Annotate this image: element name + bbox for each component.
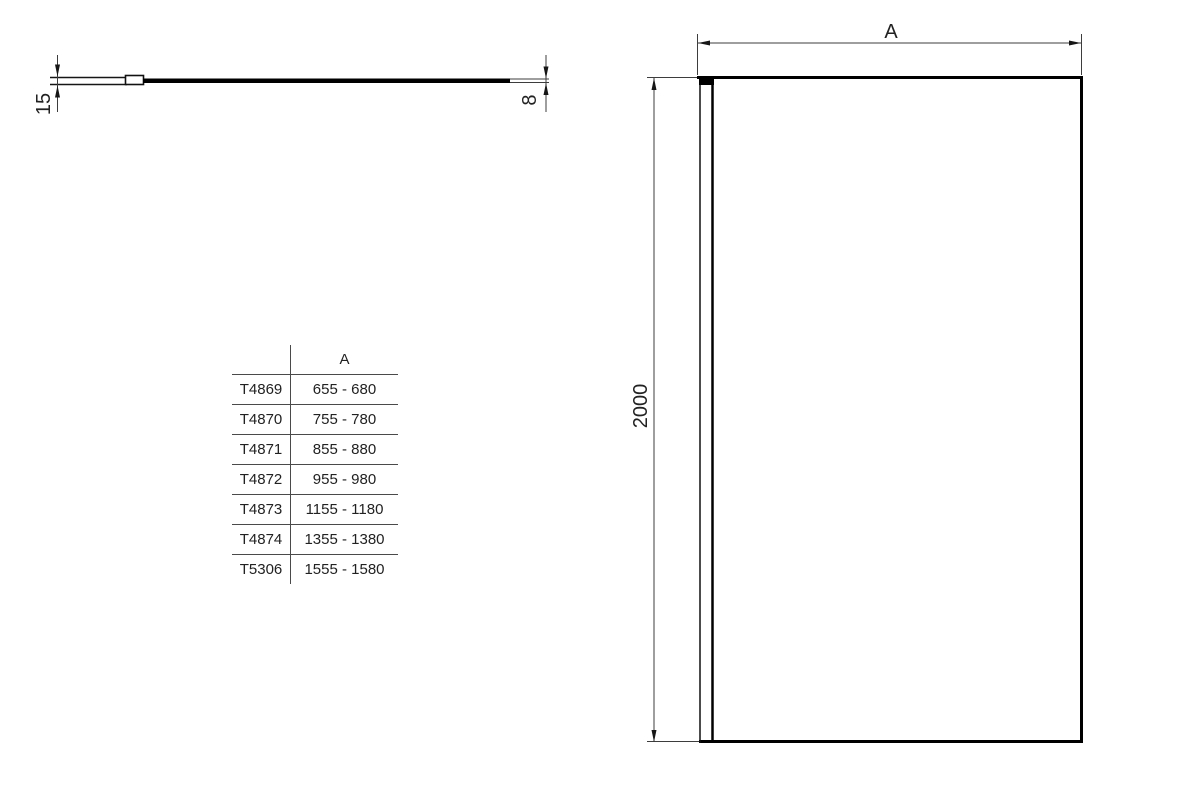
dim-a-label: A bbox=[884, 21, 898, 43]
table-row: T5306 1555 - 1580 bbox=[232, 555, 398, 585]
size-table: A T4869 655 - 680 T4870 755 - 780 T4871 … bbox=[232, 345, 398, 584]
front-panel-bottom-edge bbox=[699, 740, 1083, 743]
product-code: T4869 bbox=[232, 375, 291, 405]
width-range: 1155 - 1180 bbox=[291, 495, 399, 525]
product-code: T4871 bbox=[232, 435, 291, 465]
table-row: T4873 1155 - 1180 bbox=[232, 495, 398, 525]
width-range: 655 - 680 bbox=[291, 375, 399, 405]
product-code: T5306 bbox=[232, 555, 291, 585]
dim-15-arrow-up bbox=[55, 86, 60, 98]
technical-drawing-canvas: 15 8 A bbox=[0, 0, 1194, 806]
dim-a-arrow-left bbox=[698, 41, 710, 46]
product-code: T4872 bbox=[232, 465, 291, 495]
table-row: T4869 655 - 680 bbox=[232, 375, 398, 405]
product-code: T4873 bbox=[232, 495, 291, 525]
front-panel-top-edge bbox=[697, 76, 1083, 79]
width-range: 955 - 980 bbox=[291, 465, 399, 495]
table-row: T4870 755 - 780 bbox=[232, 405, 398, 435]
plan-glass-panel bbox=[143, 79, 510, 84]
dim-a-arrow-right bbox=[1069, 41, 1081, 46]
table-row: T4872 955 - 980 bbox=[232, 465, 398, 495]
product-code: T4874 bbox=[232, 525, 291, 555]
front-bracket bbox=[699, 76, 714, 85]
product-code: T4870 bbox=[232, 405, 291, 435]
dim-15-label: 15 bbox=[33, 93, 55, 115]
table-row: T4874 1355 - 1380 bbox=[232, 525, 398, 555]
size-table-code-header bbox=[232, 345, 291, 375]
width-range: 1355 - 1380 bbox=[291, 525, 399, 555]
plan-view: 15 8 bbox=[33, 55, 549, 115]
dim-2000-arrow-up bbox=[652, 78, 657, 90]
width-range: 1555 - 1580 bbox=[291, 555, 399, 585]
front-panel-right-edge bbox=[1080, 76, 1083, 743]
dim-8-label: 8 bbox=[519, 94, 541, 105]
drawing-layer: 15 8 A bbox=[0, 0, 1194, 806]
size-table-width-header: A bbox=[291, 345, 399, 375]
dim-15-arrow-down bbox=[55, 65, 60, 77]
dim-8-arrow-down bbox=[544, 67, 549, 79]
width-range: 755 - 780 bbox=[291, 405, 399, 435]
dim-2000-label: 2000 bbox=[630, 384, 652, 429]
width-range: 855 - 880 bbox=[291, 435, 399, 465]
table-row: T4871 855 - 880 bbox=[232, 435, 398, 465]
dim-2000-arrow-down bbox=[652, 730, 657, 742]
front-view: A 2000 bbox=[630, 21, 1083, 743]
plan-bracket bbox=[126, 76, 144, 85]
dim-8-arrow-up bbox=[544, 83, 549, 95]
size-table-header-row: A bbox=[232, 345, 398, 375]
